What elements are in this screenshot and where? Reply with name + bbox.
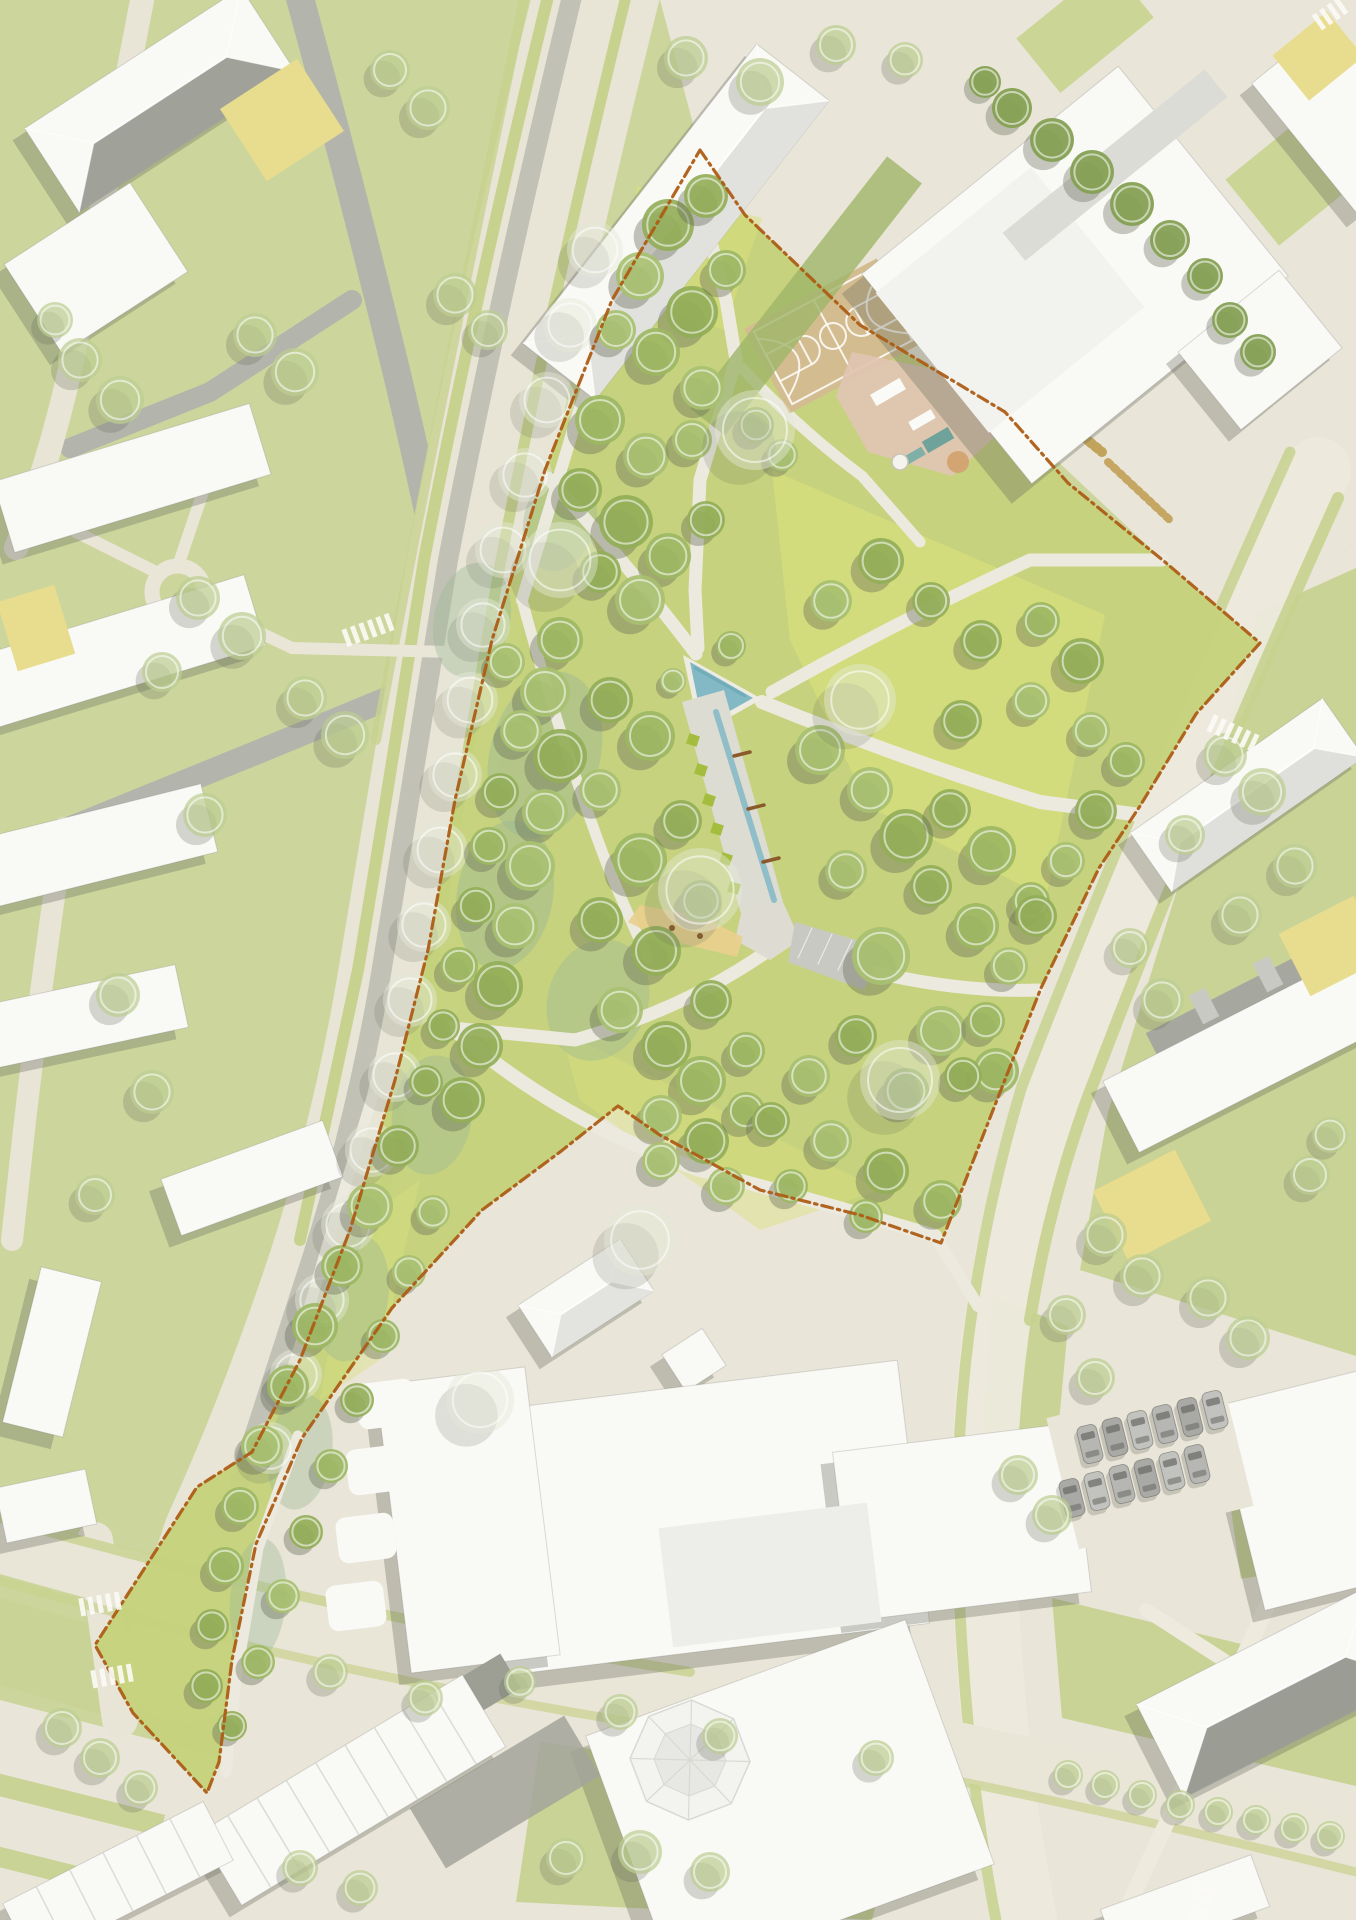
- tree-canopy: [816, 25, 856, 65]
- tree-canopy: [289, 1515, 323, 1549]
- tree-canopy: [969, 66, 1001, 98]
- tree-canopy: [660, 668, 686, 694]
- tree-canopy: [1058, 638, 1104, 684]
- tree-canopy: [992, 88, 1032, 128]
- tree-canopy: [558, 468, 602, 512]
- tree-canopy: [715, 390, 795, 470]
- tree-canopy: [596, 310, 636, 350]
- tree-canopy: [940, 700, 982, 742]
- tree-canopy: [567, 222, 623, 278]
- tree-canopy: [912, 582, 950, 620]
- tree-canopy: [312, 1654, 348, 1690]
- tree-canopy: [642, 1142, 680, 1180]
- tree-canopy: [498, 448, 552, 502]
- tree-canopy: [468, 310, 508, 350]
- tree-canopy: [314, 1449, 348, 1483]
- tree-canopy: [597, 987, 643, 1033]
- tree-canopy: [618, 1830, 662, 1874]
- tree-canopy: [852, 927, 910, 985]
- tree-canopy: [1226, 1316, 1270, 1360]
- tree-canopy: [664, 36, 708, 80]
- tree-canopy: [1165, 815, 1205, 855]
- tree-canopy: [1165, 1790, 1195, 1820]
- tree-canopy: [602, 1694, 638, 1730]
- tree-canopy: [221, 1487, 259, 1525]
- tree-canopy: [1312, 1117, 1348, 1153]
- school-module: [334, 1512, 397, 1565]
- tree-canopy: [736, 58, 784, 106]
- tree-canopy: [810, 580, 852, 622]
- tree-canopy: [944, 1057, 982, 1095]
- tree-canopy: [587, 677, 633, 723]
- tree-canopy: [505, 841, 555, 891]
- tree-canopy: [473, 961, 523, 1011]
- tree-canopy: [1120, 1254, 1164, 1298]
- tree-canopy: [122, 1770, 158, 1806]
- tree-canopy: [520, 667, 570, 717]
- tree-canopy: [1315, 1821, 1345, 1851]
- tree-canopy: [500, 710, 542, 752]
- tree-canopy: [519, 372, 575, 428]
- tree-canopy: [998, 1455, 1038, 1495]
- tree-canopy: [206, 1547, 244, 1585]
- tree-canopy: [416, 1195, 450, 1229]
- tree-canopy: [847, 767, 893, 813]
- tree-canopy: [342, 1870, 378, 1906]
- tree-canopy: [658, 848, 742, 932]
- tree-canopy: [887, 42, 923, 78]
- tree-canopy: [282, 1850, 318, 1886]
- tree-canopy: [1218, 893, 1262, 937]
- tree-canopy: [1053, 1760, 1083, 1790]
- tree-canopy: [271, 348, 319, 396]
- tree-canopy: [283, 676, 327, 720]
- tree-canopy: [412, 822, 468, 878]
- tree-canopy: [1072, 712, 1110, 750]
- tree-canopy: [1186, 1276, 1230, 1320]
- tree-canopy: [960, 620, 1002, 662]
- tree-canopy: [788, 1055, 830, 1097]
- tree-canopy: [406, 86, 450, 130]
- tree-canopy: [80, 1738, 120, 1778]
- tree-canopy: [446, 1366, 514, 1434]
- school-roof-inner: [658, 1503, 881, 1648]
- tree-canopy: [377, 1125, 419, 1167]
- tree-canopy: [825, 850, 867, 892]
- tree-canopy: [990, 947, 1028, 985]
- tree-canopy: [1070, 150, 1114, 194]
- tree-canopy: [409, 1065, 443, 1099]
- tree-canopy: [690, 1852, 730, 1892]
- tree-canopy: [439, 1077, 485, 1123]
- tree-canopy: [58, 338, 102, 382]
- tree-canopy: [579, 769, 621, 811]
- tree-canopy: [537, 617, 583, 663]
- tree-canopy: [910, 865, 952, 907]
- tree-canopy: [680, 366, 724, 410]
- tree-canopy: [1203, 733, 1247, 777]
- tree-canopy: [702, 1718, 738, 1754]
- tree-canopy: [183, 793, 227, 837]
- tree-canopy: [752, 1102, 790, 1140]
- tree-canopy: [632, 328, 680, 376]
- tree-canopy: [1140, 978, 1184, 1022]
- tree-canopy: [392, 1255, 426, 1289]
- tree-canopy: [690, 980, 732, 1022]
- school-module: [324, 1580, 387, 1633]
- tree-canopy: [1090, 1770, 1120, 1800]
- tree-canopy: [546, 1838, 586, 1878]
- tree-canopy: [953, 903, 999, 949]
- tree-canopy: [75, 1175, 115, 1215]
- tree-canopy: [1075, 1358, 1115, 1398]
- play-spinner: [892, 454, 908, 470]
- tree-canopy: [195, 1609, 229, 1643]
- tree-canopy: [863, 1148, 909, 1194]
- tree-canopy: [492, 903, 538, 949]
- tree-canopy: [1047, 842, 1085, 880]
- tree-canopy: [824, 664, 896, 736]
- tree-canopy: [1075, 790, 1117, 832]
- tree-canopy: [189, 1669, 223, 1703]
- tree-canopy: [1022, 602, 1060, 640]
- tree-canopy: [575, 395, 625, 445]
- tree-canopy: [470, 827, 508, 865]
- tree-canopy: [1273, 844, 1317, 888]
- tree-canopy: [1127, 1780, 1157, 1810]
- tree-canopy: [522, 789, 568, 835]
- tree-canopy: [967, 1002, 1005, 1040]
- tree-canopy: [1110, 182, 1154, 226]
- tree-canopy: [640, 1095, 682, 1137]
- tree-canopy: [1015, 895, 1057, 937]
- tree-canopy: [616, 252, 664, 300]
- tree-canopy: [267, 1365, 309, 1407]
- tree-canopy: [96, 376, 144, 424]
- tree-canopy: [504, 1666, 536, 1698]
- tree-canopy: [130, 1070, 174, 1114]
- tree-canopy: [96, 973, 140, 1017]
- tree-canopy: [858, 1740, 894, 1776]
- tree-canopy: [533, 729, 587, 783]
- tree-canopy: [487, 643, 525, 681]
- tree-canopy: [810, 1120, 852, 1162]
- tree-canopy: [433, 273, 477, 317]
- tree-canopy: [340, 1383, 374, 1417]
- tree-canopy: [599, 495, 653, 549]
- tree-canopy: [1187, 258, 1223, 294]
- walk: [292, 648, 452, 652]
- tree-canopy: [426, 1009, 460, 1043]
- tree-canopy: [604, 1204, 676, 1276]
- tree-canopy: [321, 711, 369, 759]
- tree-canopy: [835, 1015, 877, 1057]
- tree-canopy: [1212, 302, 1248, 338]
- tree-canopy: [1238, 768, 1286, 816]
- tree-canopy: [292, 1303, 338, 1349]
- tree-canopy: [457, 1023, 503, 1069]
- tree-canopy: [37, 302, 73, 338]
- tree-canopy: [1012, 682, 1050, 720]
- tree-canopy: [440, 947, 478, 985]
- tree-canopy: [42, 1708, 82, 1748]
- tree-canopy: [1083, 1213, 1127, 1257]
- tree-canopy: [860, 1040, 940, 1120]
- tree-canopy: [929, 789, 971, 831]
- tree-canopy: [920, 1180, 962, 1222]
- school-module: [344, 1444, 407, 1497]
- tree-canopy: [577, 897, 623, 943]
- tree-canopy: [176, 576, 220, 620]
- tree-canopy: [645, 533, 691, 579]
- tree-canopy: [615, 575, 665, 625]
- tree-canopy: [1241, 1805, 1271, 1835]
- site-plan-svg: [0, 0, 1356, 1920]
- tree-canopy: [858, 538, 904, 584]
- tree-canopy: [522, 522, 598, 598]
- tree-canopy: [1046, 1295, 1086, 1335]
- tree-canopy: [1032, 1495, 1072, 1535]
- tree-canopy: [1150, 220, 1190, 260]
- tree-canopy: [1203, 1797, 1233, 1827]
- tree-canopy: [266, 1579, 300, 1613]
- tree-canopy: [218, 612, 266, 660]
- tree-canopy: [457, 887, 495, 925]
- tree-canopy: [1107, 742, 1145, 780]
- tree-canopy: [1240, 334, 1276, 370]
- tree-canopy: [687, 501, 725, 539]
- tree-canopy: [660, 800, 702, 842]
- tree-canopy: [684, 174, 728, 218]
- tree-canopy: [966, 826, 1016, 876]
- tree-canopy: [716, 631, 746, 661]
- tree-canopy: [623, 433, 669, 479]
- tree-canopy: [370, 50, 410, 90]
- tree-canopy: [407, 1680, 443, 1716]
- tree-canopy: [1279, 1813, 1309, 1843]
- tree-canopy: [706, 250, 746, 290]
- tree-canopy: [676, 1056, 726, 1106]
- play-mound: [947, 451, 969, 473]
- tree-canopy: [543, 298, 597, 352]
- site-plan-map: [0, 0, 1356, 1920]
- tree-canopy: [1110, 928, 1150, 968]
- tree-canopy: [849, 1199, 883, 1233]
- tree-canopy: [142, 652, 182, 692]
- tree-canopy: [233, 313, 277, 357]
- tree-canopy: [241, 1645, 275, 1679]
- tree-canopy: [1030, 118, 1074, 162]
- tree-canopy: [1290, 1155, 1330, 1195]
- tree-canopy: [625, 711, 675, 761]
- tree-canopy: [727, 1032, 765, 1070]
- tree-canopy: [481, 773, 519, 811]
- tree-canopy: [397, 898, 451, 952]
